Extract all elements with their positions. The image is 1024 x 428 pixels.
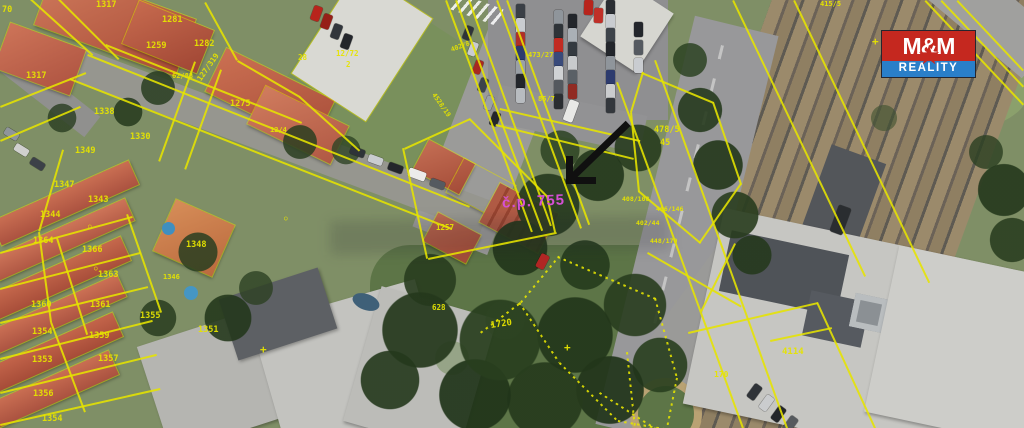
parcel-label: 406/146 (656, 206, 683, 213)
parcel-label: 1360 (31, 301, 51, 310)
parcel-label: 70 (2, 6, 12, 15)
parcel-label: 1347 (54, 181, 74, 190)
parcel-label: 4114 (782, 348, 804, 357)
arrow-head-horizontal (566, 177, 596, 184)
parcel-label: 473/27 (528, 52, 553, 59)
parcel-label: 28 (298, 54, 307, 62)
parcel-label: 1353 (32, 356, 52, 365)
parcel-label: 1259 (146, 42, 166, 51)
parcel-label: 1275 (230, 100, 250, 109)
parcel-label: 628 (432, 304, 446, 312)
parcel-label: 1354 (42, 415, 62, 424)
parcel-label: 1281 (162, 16, 182, 25)
parcel-label: 1338 (94, 108, 114, 117)
parcel-label: 1354 (32, 328, 52, 337)
parcel-label: 1348 (186, 241, 206, 250)
parcel-label: ○ (284, 216, 288, 222)
parcel-label: 1361 (90, 301, 110, 310)
parcel-label: 1317 (96, 1, 116, 10)
parcel-label: 1346 (163, 274, 180, 281)
parcel-label: 2 (346, 61, 351, 69)
parcel-label: 1282 (194, 40, 214, 49)
parcel-label: + (260, 344, 267, 355)
parcel-labels-layer: 701317128112821259131762/83127/319127512… (0, 0, 1024, 428)
parcel-label: 408/108 (622, 196, 649, 203)
parcel-label: 1356 (33, 390, 53, 399)
parcel-label: 85/7 (538, 96, 555, 103)
parcel-label: 402/44 (636, 220, 659, 227)
parcel-label: 170 (714, 371, 728, 379)
parcel-label: 1363 (98, 271, 118, 280)
parcel-label: 62/83 (172, 73, 193, 80)
parcel-label: ○ (88, 224, 92, 230)
parcel-label: 1364 (33, 237, 53, 246)
logo-top: M&M ★ (882, 31, 975, 61)
aerial-map: 701317128112821259131762/83127/319127512… (0, 0, 1024, 428)
parcel-label: 1366 (82, 246, 102, 255)
parcel-label: 1355 (140, 312, 160, 321)
parcel-label: 1344 (40, 211, 60, 220)
parcel-label: ○ (94, 266, 98, 272)
parcel-label: 448/170 (650, 238, 677, 245)
parcel-label: 1351 (198, 326, 218, 335)
realty-logo: M&M ★ REALITY (882, 31, 975, 77)
parcel-label: 1349 (75, 147, 95, 156)
star-icon: ★ (919, 44, 939, 67)
highlight-house-number: č.p. 755 (502, 191, 566, 211)
parcel-label: 127/319 (196, 52, 220, 82)
parcel-label: 1343 (88, 196, 108, 205)
parcel-label: + (564, 342, 571, 353)
parcel-label: 402/8 (450, 40, 471, 53)
parcel-label: 12/72 (336, 50, 359, 58)
parcel-label: 1317 (26, 72, 46, 81)
parcel-label: 1330 (130, 133, 150, 142)
parcel-label: + (872, 36, 879, 47)
parcel-label: 1257 (436, 224, 454, 232)
parcel-label: 1357 (98, 355, 118, 364)
parcel-label: 45 (660, 139, 670, 148)
parcel-label: 12/4 (270, 127, 287, 134)
parcel-label: 1359 (89, 332, 109, 341)
parcel-label: 1720 (490, 319, 513, 331)
parcel-label: 4528/19 (431, 92, 452, 118)
parcel-label: 478/5 (654, 126, 680, 135)
parcel-label: 415/5 (820, 1, 841, 8)
